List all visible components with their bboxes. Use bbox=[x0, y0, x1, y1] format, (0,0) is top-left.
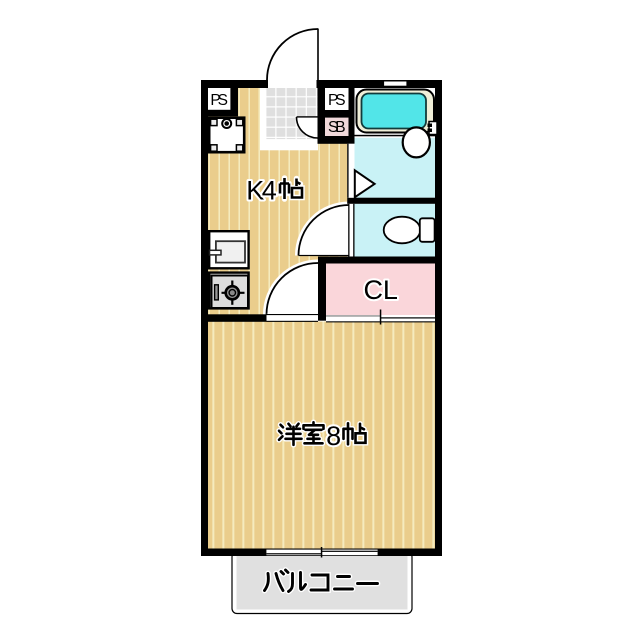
svg-text:PS: PS bbox=[328, 92, 346, 109]
svg-text:K4: K4 bbox=[246, 175, 276, 205]
svg-text:8: 8 bbox=[326, 421, 341, 451]
svg-text:SB: SB bbox=[328, 119, 346, 136]
svg-text:CL: CL bbox=[363, 275, 398, 305]
svg-text:PS: PS bbox=[210, 92, 228, 109]
